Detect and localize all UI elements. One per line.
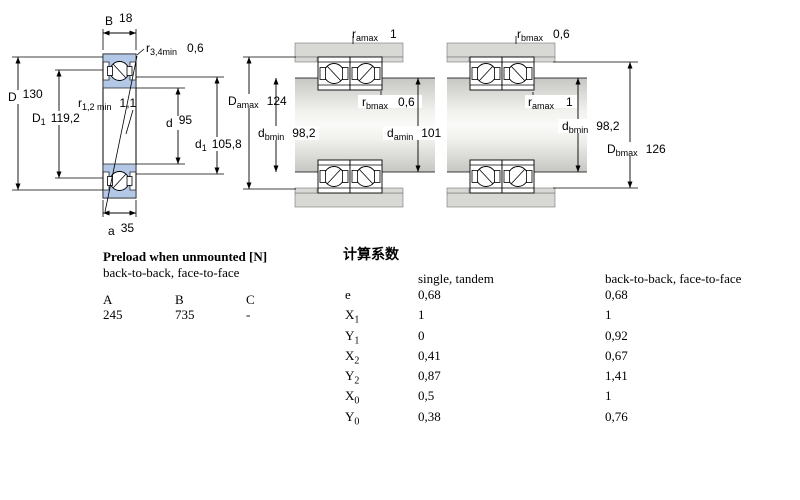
bearing-section — [470, 57, 502, 90]
housing-shoulder — [533, 57, 555, 62]
bearing-section — [350, 57, 382, 90]
bearing-section — [350, 160, 382, 193]
factor-single: 0,87 — [418, 369, 605, 389]
housing-shoulder — [533, 188, 555, 193]
housing-shoulder — [447, 57, 469, 62]
bearing-cross-section-drawing: B18 r3,4min0,6 D130 D1119,2 r1,2 min1,1 — [5, 11, 254, 238]
dimension-rbmax-right: rbmax0,6 — [516, 27, 570, 44]
dim-label-B: B18 — [105, 11, 133, 28]
preload-table-subtitle: back-to-back, face-to-face — [103, 265, 239, 280]
factors-col-paired: back-to-back, face-to-face — [605, 271, 741, 286]
housing-shoulder — [295, 188, 317, 193]
factors-table-title: 计算系数 — [343, 248, 399, 263]
preload-value-C: - — [246, 307, 306, 322]
dimension-r34: r3,4min0,6 — [137, 41, 204, 57]
factor-row-X2: X2 0,41 0,67 — [345, 349, 790, 369]
cage-pocket — [127, 177, 132, 186]
housing-top — [447, 43, 555, 57]
preload-header-row: A B C — [103, 292, 306, 307]
preload-header-C: C — [246, 292, 306, 307]
bearing-section — [470, 160, 502, 193]
bearing-section — [318, 57, 350, 90]
bearing-section — [502, 57, 534, 90]
preload-value-A: 245 — [103, 307, 175, 322]
factor-label: X2 — [345, 349, 418, 369]
factor-paired: 1 — [605, 389, 785, 409]
factor-label: X0 — [345, 389, 418, 409]
dim-label-a: a35 — [108, 221, 134, 238]
cage-pocket — [127, 67, 132, 76]
factor-single: 0,38 — [418, 410, 605, 430]
dimension-ramax-mid: ramax1 — [352, 27, 397, 44]
housing-bottom — [295, 193, 403, 207]
dimension-B: B18 — [103, 11, 136, 50]
dim-label-rbmax: rbmax0,6 — [517, 27, 570, 43]
housing-top — [295, 43, 403, 57]
factor-label: Y1 — [345, 329, 418, 349]
factor-paired: 0,92 — [605, 329, 785, 349]
arrangement-back-to-back: rbmax0,6 ramax1 dbmin98,2 Dbmax126 — [447, 27, 671, 207]
factor-row-X1: X1 1 1 — [345, 308, 790, 328]
factor-label: Y2 — [345, 369, 418, 389]
preload-table-title: Preload when unmounted [N] — [103, 249, 267, 264]
factor-paired: 0,67 — [605, 349, 785, 369]
factor-paired: 0,76 — [605, 410, 785, 430]
housing-shoulder — [381, 188, 403, 193]
factor-single: 0,68 — [418, 288, 605, 308]
bearing-body — [103, 54, 137, 212]
dimension-Damax: Damax124 — [224, 57, 296, 189]
factor-row-Y2: Y2 0,87 1,41 — [345, 369, 790, 389]
dim-label-r34: r3,4min0,6 — [146, 41, 204, 57]
factor-paired: 1,41 — [605, 369, 785, 389]
factor-row-Y1: Y1 0 0,92 — [345, 329, 790, 349]
bearing-section — [318, 160, 350, 193]
factor-single: 0,41 — [418, 349, 605, 369]
arrangement-face-to-face: ramax1 Damax124 dbmin98,2 rbmax0,6 damin… — [224, 27, 442, 207]
preload-value-row: 245 735 - — [103, 307, 306, 322]
factor-single: 0,5 — [418, 389, 605, 409]
factor-label: Y0 — [345, 410, 418, 430]
bearing-section — [502, 160, 534, 193]
factor-row-e: e 0,68 0,68 — [345, 288, 790, 308]
dim-label-D1: D1119,2 — [32, 111, 80, 127]
housing-shoulder — [295, 57, 317, 62]
housing-shoulder — [447, 188, 469, 193]
preload-header-B: B — [175, 292, 246, 307]
housing-bottom — [447, 193, 555, 207]
factor-paired: 1 — [605, 308, 785, 328]
factor-row-X0: X0 0,5 1 — [345, 389, 790, 409]
factor-paired: 0,68 — [605, 288, 785, 308]
factor-label: X1 — [345, 308, 418, 328]
factors-col-single: single, tandem — [418, 271, 494, 286]
factor-row-Y0: Y0 0,38 0,76 — [345, 410, 790, 430]
bearing-datasheet: B18 r3,4min0,6 D130 D1119,2 r1,2 min1,1 — [0, 0, 800, 500]
preload-header-A: A — [103, 292, 175, 307]
factor-label: e — [345, 288, 418, 308]
shaft — [295, 78, 435, 172]
factors-rows: e 0,68 0,68 X1 1 1 Y1 0 0,92 X2 0,41 0,6… — [345, 288, 790, 430]
factor-single: 0 — [418, 329, 605, 349]
factor-single: 1 — [418, 308, 605, 328]
housing-shoulder — [381, 57, 403, 62]
dimension-a: a35 — [103, 200, 136, 238]
preload-value-B: 735 — [175, 307, 246, 322]
dim-label-ramax: ramax1 — [352, 27, 397, 43]
dimension-d: d95 — [136, 88, 203, 164]
cage-pocket — [108, 67, 113, 76]
